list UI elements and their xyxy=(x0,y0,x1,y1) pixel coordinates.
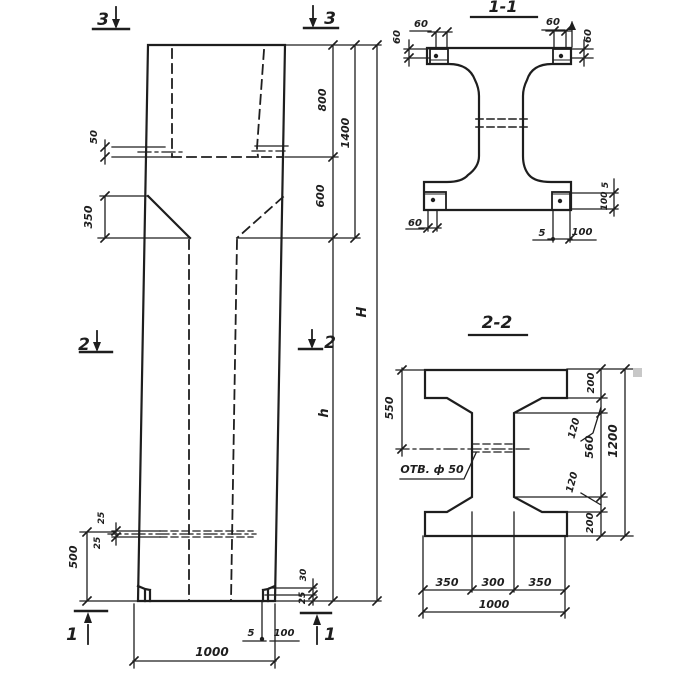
section-mark-label: 1 xyxy=(66,625,78,645)
drawing-sheet: 3 3 2 2 1 1 xyxy=(0,0,700,700)
dim-100-right: 100 xyxy=(600,192,610,211)
dim-25-top: 25 xyxy=(97,512,107,525)
dim-350: 350 xyxy=(82,205,95,228)
dim-500: 500 xyxy=(67,545,80,568)
section-mark-1-right: 1 xyxy=(301,613,336,645)
section-mark-label: 1 xyxy=(324,625,336,645)
dim-dot xyxy=(260,637,264,641)
hole-hidden-lines xyxy=(472,444,516,452)
dim-550: 550 xyxy=(383,396,396,419)
dim-1000-width: 1000 xyxy=(195,645,228,659)
dim-1400: 1400 xyxy=(339,117,352,148)
arrow-down-icon xyxy=(112,19,120,29)
section-mark-label: 2 xyxy=(78,335,90,355)
dim-50: 50 xyxy=(89,130,100,144)
dim-5-right: 5 xyxy=(601,182,611,188)
dim-25-foot: 25 xyxy=(298,592,308,605)
dim-120-bottom: 120 xyxy=(565,471,581,494)
dim-60-top-right-side: 60 xyxy=(583,29,594,43)
taper-left xyxy=(148,196,190,238)
dim-60-bottom-left: 60 xyxy=(408,218,422,229)
dim-300: 300 xyxy=(482,576,505,589)
dim-1200: 1200 xyxy=(606,424,620,457)
foot-left xyxy=(138,586,150,601)
dim-5-bottom: 5 xyxy=(539,228,546,239)
plate-centerlines xyxy=(138,151,285,152)
section-2-2-outline xyxy=(425,370,567,536)
section-1-1-outline xyxy=(424,48,571,210)
dim-25-bottom: 25 xyxy=(93,537,103,550)
elevation-view: 3 3 2 2 1 1 xyxy=(66,6,381,668)
dim-30-foot: 30 xyxy=(299,569,309,582)
arrow-down-icon xyxy=(309,18,317,28)
dim-200-top: 200 xyxy=(586,373,597,394)
shaft-hidden-lines xyxy=(189,240,237,601)
section-mark-2-right: 2 xyxy=(299,330,336,353)
web-hidden-lines xyxy=(476,119,527,127)
dim-60-top-right: 60 xyxy=(546,17,560,28)
technical-drawing: 3 3 2 2 1 1 xyxy=(0,0,700,700)
dim-200-bottom: 200 xyxy=(585,513,596,534)
dim-100-foot: 100 xyxy=(274,628,295,639)
taper-right-hidden xyxy=(237,197,283,238)
section-mark-2-left: 2 xyxy=(78,331,112,355)
arrow-up-icon xyxy=(313,614,321,625)
dim-350-right: 350 xyxy=(529,576,552,589)
dim-h: h xyxy=(317,408,332,417)
arrow-up-icon xyxy=(84,612,92,623)
dim-H: H xyxy=(355,306,370,317)
dim-5-foot: 5 xyxy=(248,628,255,639)
dim-100-bottom: 100 xyxy=(572,227,593,238)
dim-800: 800 xyxy=(316,88,329,111)
embedded-plates xyxy=(424,49,571,210)
hole-label: ОТВ. ф 50 xyxy=(400,463,464,476)
dim-60-top-left-side: 60 xyxy=(392,30,403,44)
dim-1000-section: 1000 xyxy=(479,598,510,611)
section-1-1-view: 1-1 60 60 60 60 60 5 100 xyxy=(392,0,618,243)
section-1-1-title: 1-1 xyxy=(489,0,518,16)
dim-60-top-left: 60 xyxy=(414,19,428,30)
elevation-outline xyxy=(138,45,285,601)
dim-dot xyxy=(551,237,555,241)
socket-hidden-lines xyxy=(172,49,283,157)
elevation-dim-lines xyxy=(80,45,381,668)
arrow-down-icon xyxy=(308,339,316,349)
dim-600: 600 xyxy=(314,184,327,207)
dim-350-left: 350 xyxy=(436,576,459,589)
section-mark-label: 3 xyxy=(324,9,336,29)
arrow-down-icon xyxy=(93,342,101,352)
section-mark-3-left: 3 xyxy=(93,7,129,30)
section-mark-3-right: 3 xyxy=(304,6,338,29)
hole-callout: ОТВ. ф 50 xyxy=(400,453,476,479)
section-mark-label: 3 xyxy=(97,10,109,30)
section-2-2-title: 2-2 xyxy=(482,313,513,333)
dim-560: 560 xyxy=(583,435,596,458)
selection-handle-artifact xyxy=(633,368,642,377)
section-mark-1-left: 1 xyxy=(66,611,107,645)
section-mark-label: 2 xyxy=(324,333,336,353)
dim-120-top: 120 xyxy=(567,417,583,440)
section-2-2-view: 2-2 ОТВ. ф 50 550 200 120 560 120 200 12… xyxy=(383,313,642,618)
